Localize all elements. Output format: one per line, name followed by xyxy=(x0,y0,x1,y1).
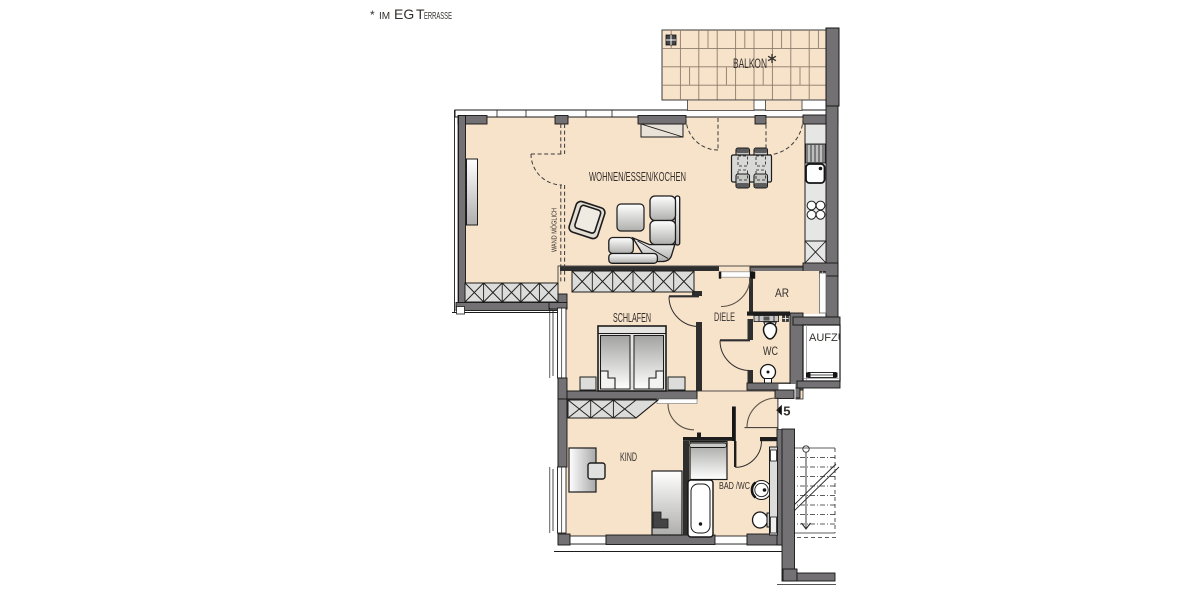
svg-text:IM: IM xyxy=(379,11,390,22)
svg-text:BAD /WC: BAD /WC xyxy=(719,480,750,492)
svg-text:DIELE: DIELE xyxy=(714,310,735,324)
svg-text:AR: AR xyxy=(775,286,789,300)
svg-text:SCHLAFEN: SCHLAFEN xyxy=(613,311,651,325)
svg-text:5: 5 xyxy=(783,404,790,419)
svg-text:AUFZUG: AUFZUG xyxy=(809,332,854,344)
svg-text:*: * xyxy=(370,8,375,22)
svg-text:KIND: KIND xyxy=(620,452,637,464)
svg-text:WC: WC xyxy=(763,344,778,358)
svg-text:BALKON: BALKON xyxy=(733,56,767,71)
svg-text:ERRASSE: ERRASSE xyxy=(424,11,452,22)
svg-text:WAND MÖGLICH: WAND MÖGLICH xyxy=(550,208,559,252)
svg-text:WOHNEN/ESSEN/KOCHEN: WOHNEN/ESSEN/KOCHEN xyxy=(589,169,686,184)
svg-text:EG: EG xyxy=(394,6,414,22)
